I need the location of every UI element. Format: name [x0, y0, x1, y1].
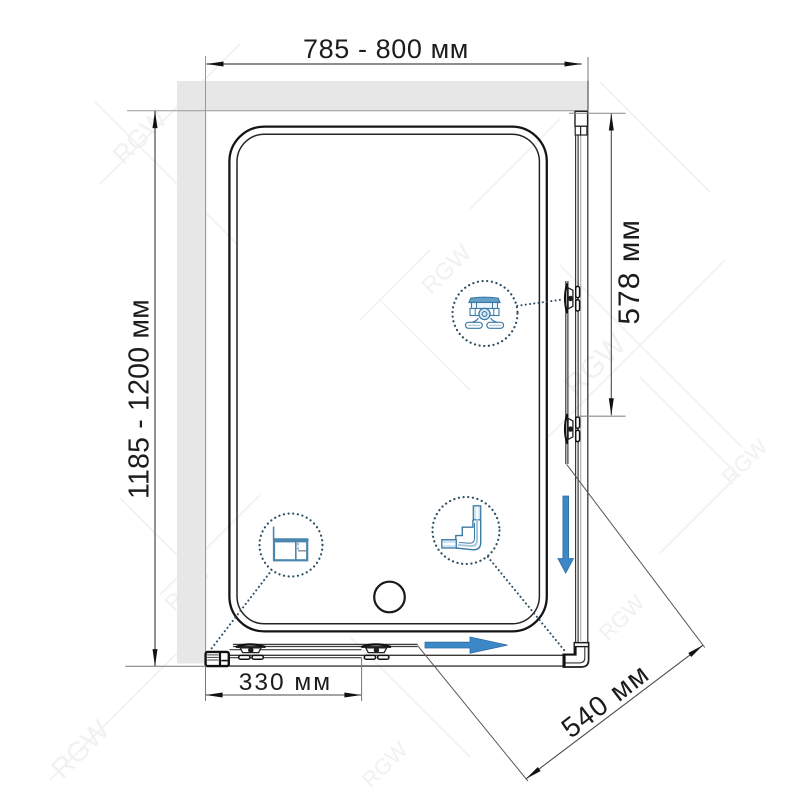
svg-text:578 мм: 578 мм: [613, 219, 646, 325]
svg-text:330 мм: 330 мм: [239, 669, 332, 696]
svg-text:1185 - 1200 мм: 1185 - 1200 мм: [124, 299, 156, 499]
svg-text:785 - 800 мм: 785 - 800 мм: [303, 34, 469, 64]
